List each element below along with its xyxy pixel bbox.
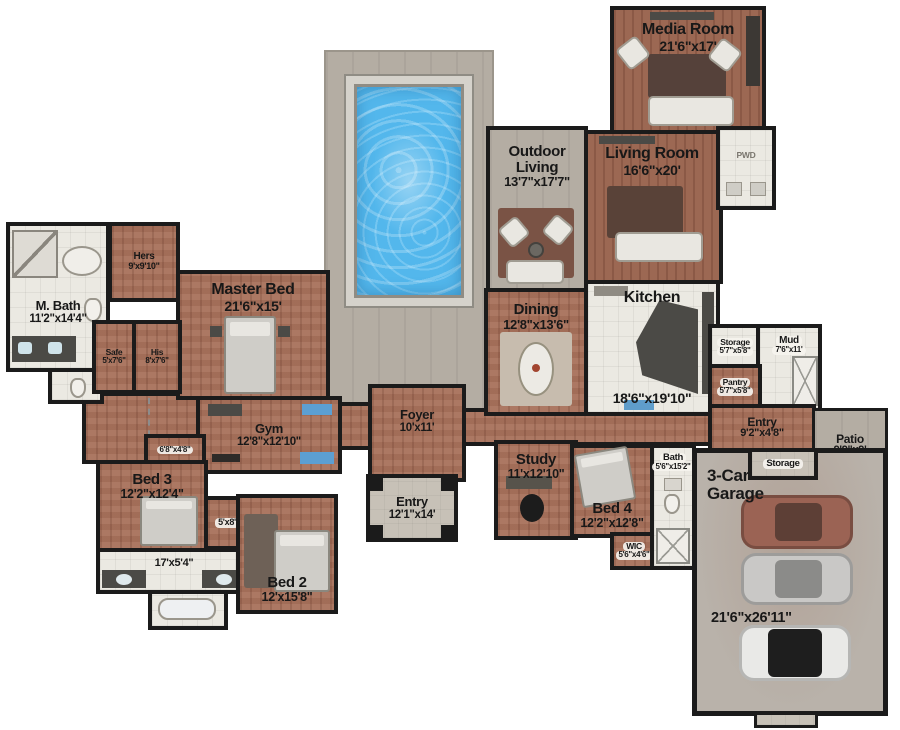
room-dims: 12'1"x14' xyxy=(389,509,436,521)
weight-bench-icon xyxy=(208,404,242,416)
room-safe: Safe 5'x7'6" xyxy=(92,320,136,394)
room-garage: 3-Car Garage 21'6"x26'11" xyxy=(692,448,888,716)
room-dims: 10'x11' xyxy=(400,422,435,434)
chair-icon xyxy=(615,35,651,71)
room-jack-jill-bath: 17'x5'4" xyxy=(96,548,252,594)
rug xyxy=(607,186,683,238)
tub-icon xyxy=(158,598,216,620)
room-dims: 6'8"x4'8" xyxy=(157,446,194,454)
room-dims: 16'6"x20' xyxy=(623,163,680,178)
car-icon xyxy=(739,625,851,681)
room-dims: 12'8"x13'6" xyxy=(503,318,569,332)
car-glass xyxy=(775,503,822,542)
pillar xyxy=(441,478,454,491)
dumbbells-icon xyxy=(212,454,240,462)
room-label: PWD xyxy=(737,151,756,160)
tub-icon xyxy=(62,246,102,276)
toilet-icon xyxy=(70,378,86,398)
room-hers-closet: Hers 9'x9'10" xyxy=(108,222,180,302)
room-label: Gym xyxy=(255,422,283,436)
room-dims: 9'2"x4'8" xyxy=(740,428,784,440)
room-dims: 21'6"x15' xyxy=(224,299,281,314)
toilet-icon xyxy=(84,298,102,322)
room-foyer: Foyer 10'x11' xyxy=(368,384,466,482)
centerpiece xyxy=(532,364,540,372)
room-bed2: Bed 2 12'x15'8" xyxy=(236,494,338,614)
room-media: Media Room 21'6"x17' xyxy=(610,6,766,138)
built-in-cabinet xyxy=(792,356,818,406)
room-dims: 12'x15'8" xyxy=(262,591,313,604)
kitchen-island xyxy=(636,300,698,394)
room-label: Living Room xyxy=(605,146,699,163)
room-dims: 13'7"x17'7" xyxy=(504,175,570,189)
room-garage-storage: Storage xyxy=(748,448,818,480)
room-label: Foyer xyxy=(400,408,434,422)
pool xyxy=(354,84,464,298)
pool-coping xyxy=(344,74,474,308)
room-living: Living Room 16'6"x20' xyxy=(581,130,723,284)
bed-icon xyxy=(140,496,198,546)
room-dims: 12'8"x12'10" xyxy=(237,436,301,448)
room-label: Master Bed xyxy=(211,282,294,299)
toilet-icon xyxy=(664,494,680,514)
nightstand xyxy=(278,326,290,337)
room-label: M. Bath xyxy=(36,299,81,313)
room-hall-bath: Bath 5'6"x15'2" xyxy=(650,444,696,570)
room-master-bed: Master Bed 21'6"x15' xyxy=(176,270,330,400)
tub-nook xyxy=(148,590,228,630)
room-label: Bed 2 xyxy=(267,575,306,591)
room-label: Dining xyxy=(514,302,559,318)
exercise-mat xyxy=(302,404,332,415)
room-gym: Gym 12'8"x12'10" xyxy=(196,396,342,474)
room-rear-entry: Entry 9'2"x4'8" xyxy=(708,404,816,452)
pillar xyxy=(370,478,383,491)
bed-icon xyxy=(574,446,637,509)
room-label: Storage xyxy=(763,459,802,469)
room-label: Bed 3 xyxy=(132,472,171,488)
room-study: Study 11'x12'10" xyxy=(494,440,578,540)
room-bed4: Bed 4 12'2"x12'8" xyxy=(570,444,654,538)
sofa-icon xyxy=(506,260,564,284)
shower-icon xyxy=(12,230,58,278)
room-label: Kitchen xyxy=(624,290,681,307)
room-kitchen: Kitchen 18'6"x19'10" xyxy=(584,280,720,416)
car-glass xyxy=(768,629,822,676)
room-dims: 5'x7'6" xyxy=(102,357,125,365)
room-his-closet: His 8'x7'6" xyxy=(132,320,182,394)
room-dims: 5'7"x5'8" xyxy=(717,347,754,355)
sink-icon xyxy=(750,182,766,196)
sink-icon xyxy=(726,182,742,196)
car-icon xyxy=(741,553,853,605)
room-dims: 21'6"x26'11" xyxy=(711,611,792,626)
shower-icon xyxy=(656,528,690,564)
room-dining: Dining 12'8"x13'6" xyxy=(484,288,588,416)
exercise-mat xyxy=(300,452,334,464)
floor-plan: M. Bath 11'2"x14'4" Hers 9'x9'10" Master… xyxy=(0,0,900,730)
room-dims: 12'2"x12'8" xyxy=(580,517,643,530)
room-dims: 9'x9'10" xyxy=(128,262,159,271)
room-dims: 21'6"x17' xyxy=(659,39,716,54)
garage-stoop xyxy=(754,712,818,728)
bed-icon xyxy=(224,316,276,394)
sofa-icon xyxy=(648,96,734,126)
room-mud: Mud 7'6"x11' xyxy=(756,324,822,412)
room-dims: 11'x12'10" xyxy=(508,468,565,481)
room-dims: 18'6"x19'10" xyxy=(613,391,692,406)
fire-pit-icon xyxy=(528,242,544,258)
room-dims: 17'x5'4" xyxy=(155,558,194,570)
media-cabinet xyxy=(746,16,760,86)
pillar xyxy=(370,525,383,538)
vanity xyxy=(12,336,76,362)
tv-icon xyxy=(650,12,714,20)
room-label: Entry xyxy=(396,495,428,509)
tv-icon xyxy=(599,136,655,144)
vanity xyxy=(102,570,146,588)
sofa-icon xyxy=(615,232,703,262)
room-dims: 5'6"x15'2" xyxy=(652,463,693,471)
room-outdoor-living: Outdoor Living 13'7"x17'7" xyxy=(486,126,588,292)
pillar xyxy=(441,525,454,538)
nightstand xyxy=(210,326,222,337)
room-dims: 5'7"x5'8" xyxy=(717,387,754,395)
room-powder: PWD xyxy=(716,126,776,210)
room-bed3: Bed 3 12'2"x12'4" xyxy=(96,460,208,552)
room-label: Media Room xyxy=(642,22,734,39)
room-dims: 5'6"x4'6" xyxy=(616,551,653,559)
sink-icon xyxy=(664,478,682,491)
room-dims: 11'2"x14'4" xyxy=(29,313,86,325)
car-glass xyxy=(775,560,822,597)
room-dims: 8'x7'6" xyxy=(145,357,168,365)
room-label: Study xyxy=(516,452,556,468)
room-label: Outdoor Living xyxy=(497,144,577,175)
room-front-entry: Entry 12'1"x14' xyxy=(366,474,458,542)
room-dims: 12'2"x12'4" xyxy=(120,488,183,501)
office-chair-icon xyxy=(520,494,544,522)
room-dims: 7'6"x11' xyxy=(772,346,805,354)
car-icon xyxy=(741,495,853,549)
room-label: Bed 4 xyxy=(592,501,631,517)
